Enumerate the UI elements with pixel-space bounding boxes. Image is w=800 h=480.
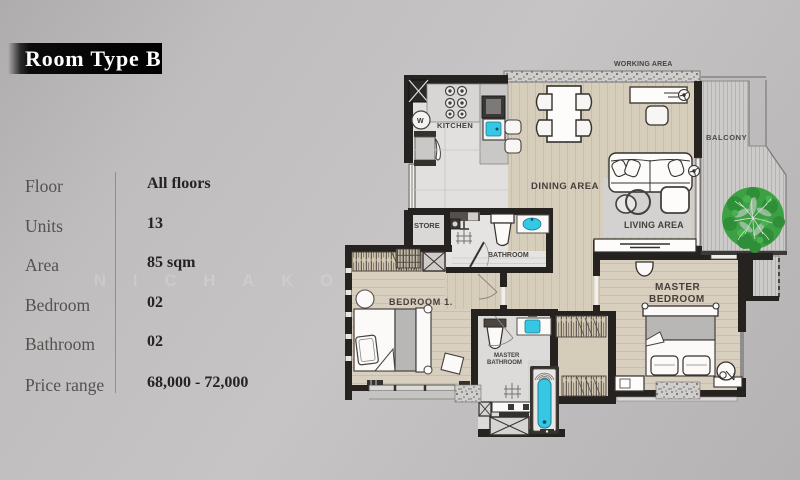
svg-text:MASTER: MASTER: [494, 353, 520, 359]
svg-text:BALCONY: BALCONY: [706, 133, 747, 142]
svg-text:MASTER: MASTER: [655, 282, 701, 293]
svg-text:BATHROOM: BATHROOM: [487, 360, 522, 366]
svg-text:BEDROOM 1.: BEDROOM 1.: [389, 297, 453, 307]
svg-text:LIVING AREA: LIVING AREA: [624, 220, 684, 230]
svg-text:STORE: STORE: [414, 221, 440, 230]
svg-text:DINING AREA: DINING AREA: [531, 181, 599, 192]
svg-text:W: W: [417, 118, 424, 125]
svg-text:WORKING AREA: WORKING AREA: [614, 61, 673, 68]
svg-text:BATHROOM: BATHROOM: [488, 252, 529, 259]
svg-text:KITCHEN: KITCHEN: [437, 121, 473, 130]
svg-text:BEDROOM: BEDROOM: [649, 294, 705, 305]
